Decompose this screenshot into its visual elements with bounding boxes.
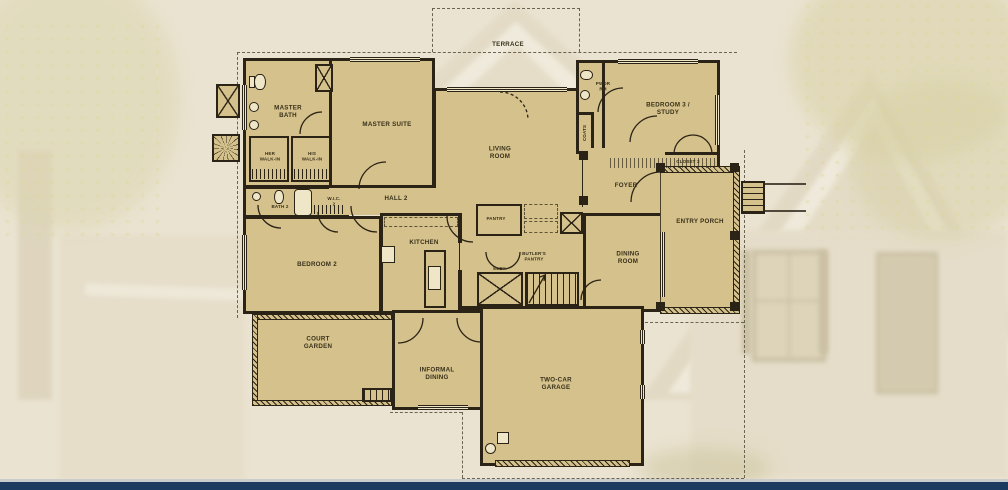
court-garden-steps (362, 388, 392, 402)
label-bath-2: BATH 2 (271, 204, 288, 209)
window-bedroom3-right (715, 95, 720, 145)
butlers-counter (524, 221, 558, 233)
elevator-box (477, 272, 523, 306)
label-bedroom-3-study: BEDROOM 3 / STUDY (646, 102, 690, 117)
overhang-line-garage-left (462, 412, 463, 478)
room-informal-dining (392, 310, 484, 410)
room-entry-porch (660, 168, 740, 314)
window-bedroom2-left (242, 235, 247, 290)
window-living-top (447, 87, 567, 92)
label-hall-2: HALL 2 (384, 195, 407, 202)
label-terrace: TERRACE (492, 41, 524, 48)
pantry-cabinet-row (524, 204, 558, 219)
label-butlers-pantry: BUTLER'S PANTRY (522, 252, 546, 263)
porch-column-br (730, 302, 739, 311)
floorplan-page: TERRACE MASTER BATH MASTER SUITE HER WAL… (0, 0, 1008, 490)
overhang-line-rear (645, 322, 744, 323)
overhang-line-top (237, 52, 737, 53)
label-informal-dining: INFORMAL DINING (420, 367, 455, 382)
porch-column-tr (730, 163, 739, 172)
master-fireplace-chase (315, 64, 333, 92)
label-foyer: FOYER (615, 182, 638, 189)
master-vanity-sink-1 (249, 102, 259, 112)
closet3-rod (610, 158, 716, 168)
label-closet-3: CLOSET 3 (676, 159, 699, 164)
label-bedroom-2: BEDROOM 2 (297, 261, 337, 268)
powder-toilet (580, 70, 593, 80)
master-toilet (254, 74, 266, 90)
label-pantry: PANTRY (486, 216, 505, 221)
porch-steps (741, 181, 765, 214)
label-master-bath: MASTER BATH (274, 105, 302, 120)
his-closet-rod (294, 169, 328, 179)
label-dining-room: DINING ROOM (616, 251, 639, 266)
background-shutter-right (819, 250, 828, 354)
master-toilet-tank (249, 76, 255, 88)
background-foliage-speckle-right (800, 0, 1008, 240)
porch-step-line-top (764, 183, 806, 185)
wall-kitchen-butlers-upper (458, 213, 462, 243)
wall-kitchen-butlers-lower (458, 270, 462, 310)
bath2-sink (252, 192, 261, 201)
label-pwdr-rm: PWDR RM (596, 82, 610, 93)
kitchen-range (381, 246, 395, 263)
porch-step-line-bottom (764, 210, 806, 212)
window-master-suite-top (350, 57, 420, 62)
porch-edge-right (733, 166, 740, 314)
label-master-suite: MASTER SUITE (362, 121, 411, 128)
background-window-right (752, 250, 826, 362)
powder-sink (580, 90, 590, 100)
label-her-walk-in: HER WALK-IN (260, 152, 281, 163)
label-living-room: LIVING ROOM (489, 146, 511, 161)
outdoor-ac-unit (212, 134, 240, 162)
window-bedroom3-top (618, 59, 698, 64)
label-his-walk-in: HIS WALK-IN (302, 152, 323, 163)
label-wic-2: W.I.C. 2 (327, 197, 340, 208)
outdoor-unit-box (216, 84, 240, 118)
label-entry-porch: ENTRY PORCH (676, 218, 724, 225)
window-master-bath-left (242, 85, 247, 130)
room-kitchen (380, 213, 462, 314)
court-garden-wall-left (252, 314, 258, 406)
window-informal-bottom (418, 405, 468, 410)
foyer-column-top (579, 151, 588, 160)
garage-water-heater (497, 432, 509, 444)
garage-floor-drain (485, 443, 496, 454)
porch-column-bl (656, 302, 665, 311)
window-dining-right (660, 232, 665, 297)
label-elevator: ELEV. (493, 266, 506, 271)
overhang-line-mid (390, 412, 462, 413)
background-house-wall-left (60, 235, 245, 480)
bath2-toilet (274, 190, 284, 204)
label-coats: COATS (582, 125, 587, 141)
label-two-car-garage: TWO-CAR GARAGE (540, 377, 572, 392)
her-closet-rod (252, 169, 286, 179)
background-door (876, 252, 938, 394)
bath2-tub (294, 189, 312, 216)
master-vanity-sink-2 (249, 120, 259, 130)
footer-bar (0, 482, 1008, 490)
window-garage-right-1 (640, 330, 645, 344)
kitchen-island-appliance (428, 266, 441, 290)
chase-box (560, 212, 583, 234)
garage-door-strip (495, 460, 630, 467)
background-foliage-speckle-left (0, 20, 170, 240)
label-kitchen: KITCHEN (409, 239, 438, 246)
label-court-garden: COURT GARDEN (304, 336, 332, 351)
porch-column-mr (730, 231, 739, 240)
window-garage-right-2 (640, 385, 645, 399)
porch-edge-bottom (660, 307, 740, 314)
staircase (525, 272, 579, 306)
court-garden-wall-top (252, 314, 392, 320)
kitchen-counter-top (384, 217, 458, 227)
foyer-column-bottom (579, 196, 588, 205)
